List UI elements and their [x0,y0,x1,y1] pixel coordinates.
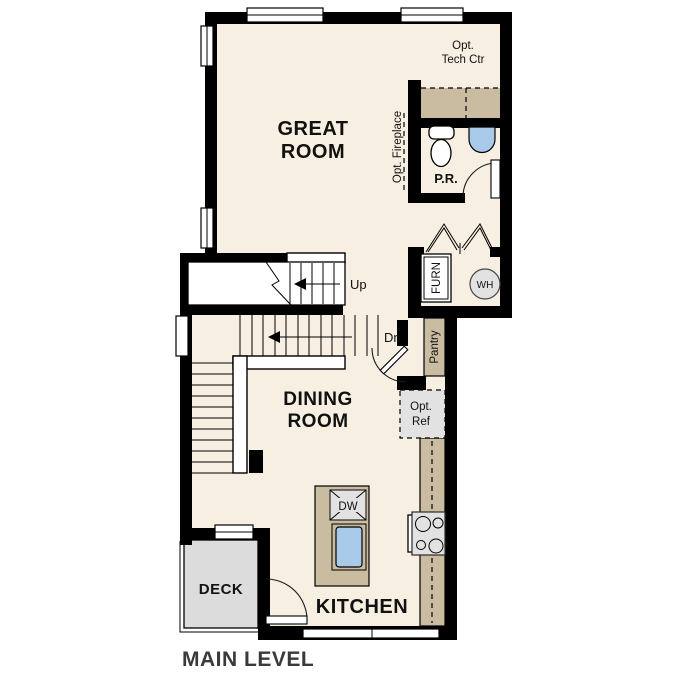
kitchen-label: KITCHEN [316,596,408,618]
wall-right-lower [445,306,457,640]
opt-refrigerator [400,390,445,438]
opt-ref-label-2: Ref [412,416,431,428]
stair-railing-top [233,356,345,369]
window-stair [176,316,188,356]
stairs-up-label: Up [350,277,367,292]
opt-fireplace-label: Opt. Fireplace [392,111,404,183]
opt-ref-label-1: Opt. [410,401,432,413]
pr-sink [469,127,495,153]
wall-stair-mid [180,305,343,315]
dining-room-label-1: DINING [283,389,353,410]
tech-ctr-counter [421,88,500,118]
plan-title: MAIN LEVEL [182,648,314,671]
wall-utility-bottom [408,306,512,318]
great-room-label-2: ROOM [281,141,345,163]
stair-railing-side [233,356,247,473]
wall-pantry-stub-bottom [397,376,426,390]
powder-room-label: P.R. [434,171,458,186]
range-stove [408,512,445,555]
deck-label: DECK [199,581,244,598]
dishwasher-label: DW [338,501,357,513]
opt-tech-ctr-label-1: Opt. [452,40,474,52]
wall-pr-bottom [408,193,465,203]
great-room-label-1: GREAT [277,118,348,140]
furnace-label: FURN [431,262,443,294]
island-sink [332,524,366,570]
pantry-label: Pantry [429,330,441,363]
water-heater-label: WH [477,280,494,291]
wall-fireplace [408,80,421,203]
wall-stair-rail-stub [249,450,263,473]
floor-plan-page: GREAT ROOM DINING ROOM KITCHEN DECK P.R.… [0,0,687,687]
opt-tech-ctr-label-2: Tech Ctr [442,54,485,66]
window-kitchen [303,629,439,638]
wall-right-upper [500,12,512,318]
floor-plan-drawing: GREAT ROOM DINING ROOM KITCHEN DECK P.R.… [0,0,687,687]
wall-deck-right [258,528,270,628]
wall-pr-top [408,118,512,128]
stairs-down-label: Dn [384,330,401,345]
dining-room-label-2: ROOM [287,411,348,432]
